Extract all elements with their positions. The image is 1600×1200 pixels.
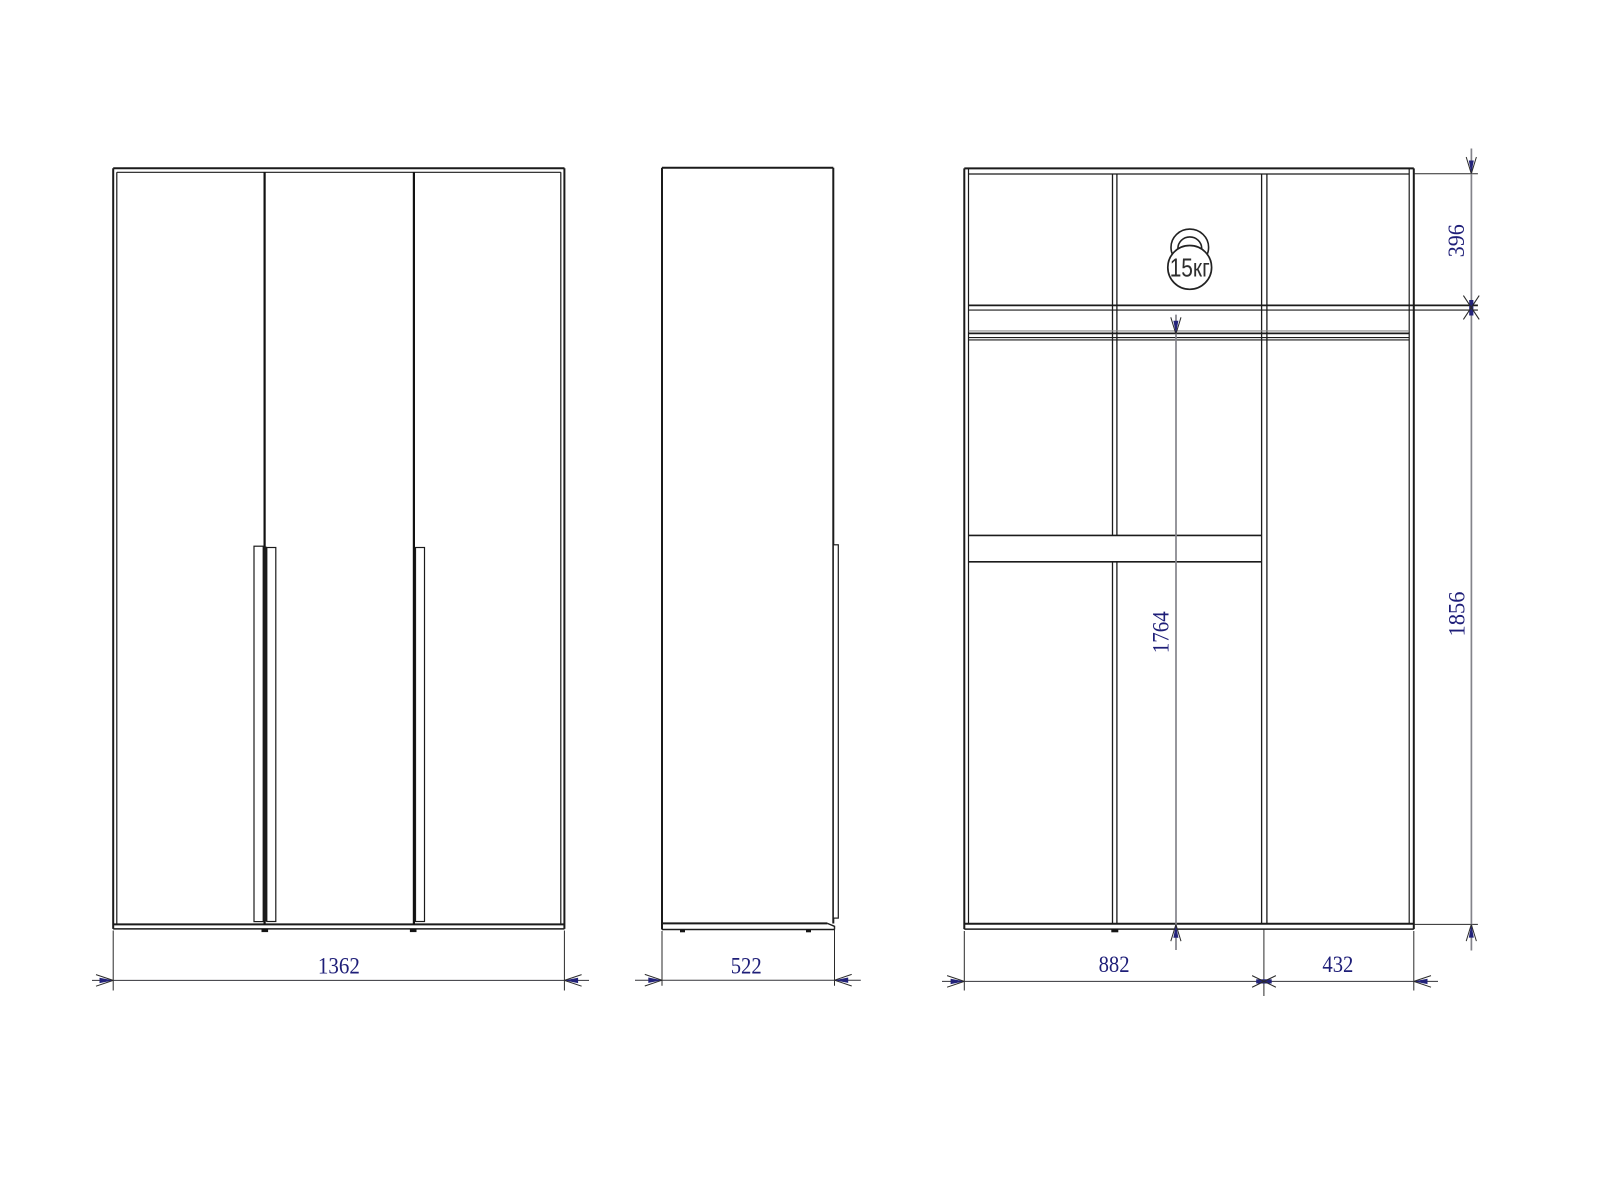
svg-text:432: 432 [1322,952,1353,978]
svg-text:1764: 1764 [1149,611,1175,653]
svg-text:882: 882 [1099,952,1130,978]
svg-text:396: 396 [1444,224,1470,257]
svg-text:1856: 1856 [1445,591,1471,636]
svg-text:522: 522 [731,953,762,979]
svg-text:15кг: 15кг [1170,252,1210,282]
svg-text:1362: 1362 [318,953,360,979]
